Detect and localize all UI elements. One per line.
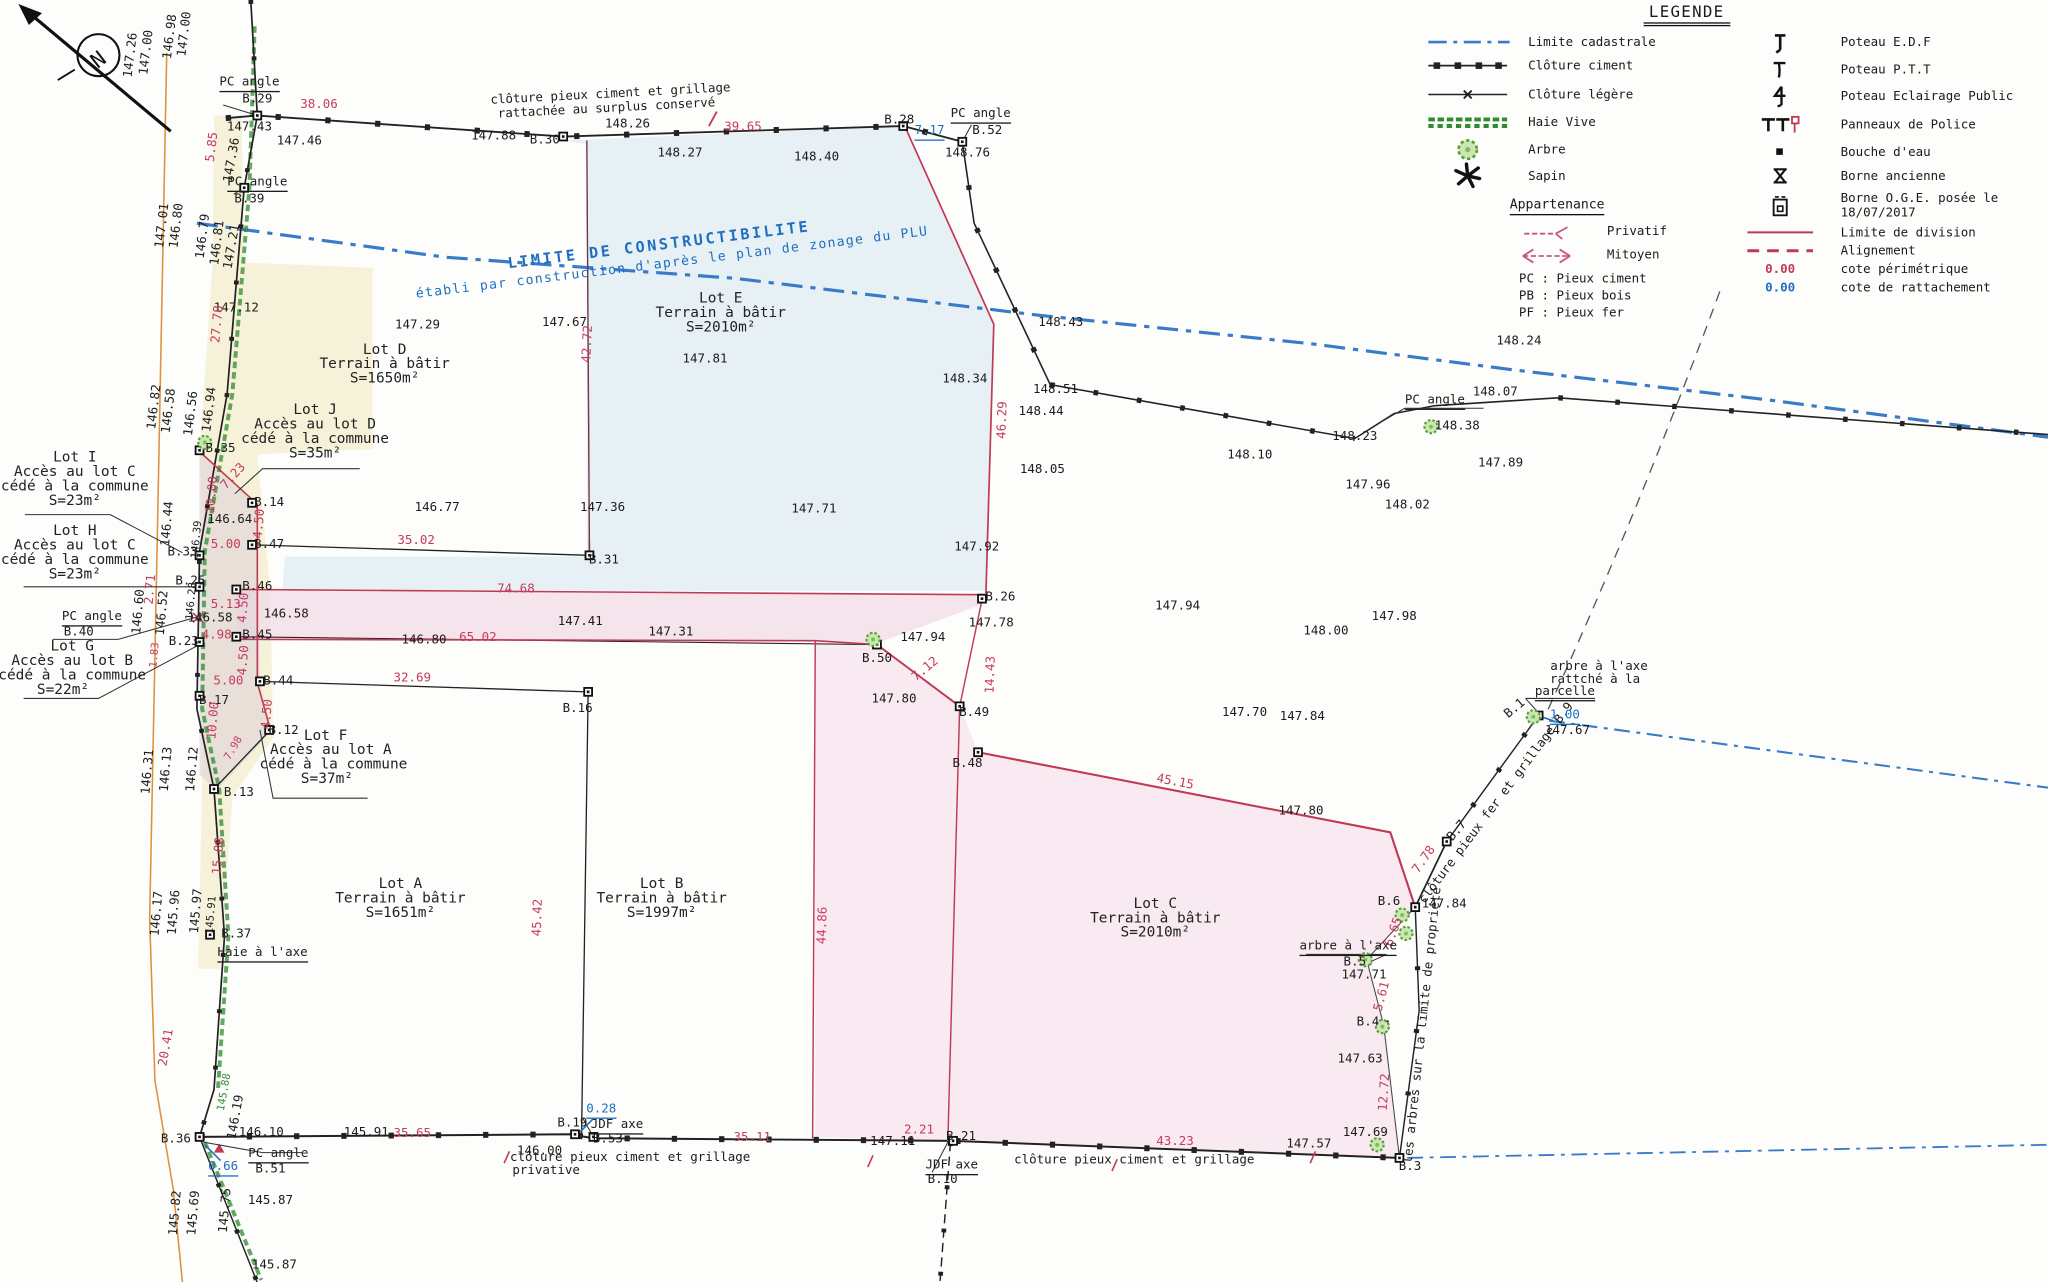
boundary-point-center xyxy=(958,705,961,708)
boundary-point-center xyxy=(198,1136,201,1139)
north-arrow-icon: N xyxy=(18,4,170,131)
legend-item-arbre: Arbre xyxy=(1420,139,1565,160)
boundary-point-center xyxy=(235,635,238,638)
arbre-icon xyxy=(1359,953,1372,966)
borne-ancienne-icon xyxy=(1733,165,1828,186)
boundary-point-center xyxy=(977,751,980,754)
legend-item-label: Limite cadastrale xyxy=(1515,35,1656,49)
boundary-point-center xyxy=(209,933,212,936)
legend-appartenance-title: Appartenance xyxy=(1510,198,1605,215)
legend-item-label: Clôture légère xyxy=(1515,87,1633,101)
boundary-point-center xyxy=(588,554,591,557)
legend-item-haie-vive: Haie Vive xyxy=(1420,112,1595,133)
boundary-point-center xyxy=(243,186,246,189)
boundary-point-center xyxy=(251,501,254,504)
poteau-eclairage-icon xyxy=(1733,84,1828,108)
legend-item-label: Limite de division xyxy=(1827,225,1975,239)
panneaux-police-icon xyxy=(1733,113,1828,137)
arbre-icon xyxy=(198,436,211,449)
legend-abbreviation: PF : Pieux fer xyxy=(1519,306,1624,320)
arbre-icon xyxy=(1371,1138,1384,1151)
boundary-point-center xyxy=(1398,1157,1401,1160)
boundary-point-center xyxy=(1445,840,1448,843)
legend-abbreviation: PB : Pieux bois xyxy=(1519,289,1632,303)
legend-item-cloture-legere: Clôture légère xyxy=(1420,84,1633,105)
survey-plan-page: N 147.26147.00146.98147.00PC angleB.2914… xyxy=(0,0,2048,1282)
arbre-icon xyxy=(1424,420,1437,433)
legend-item-sapin: Sapin xyxy=(1420,165,1565,186)
sapin-icon xyxy=(1420,161,1515,190)
boundary-point-center xyxy=(235,588,238,591)
boundary-point-center xyxy=(198,449,201,452)
boundary-point-center xyxy=(198,694,201,697)
dashed-curve-line xyxy=(1547,291,1720,712)
legend-item-privatif-arrow: Privatif xyxy=(1499,221,1667,242)
legend-item-label: Poteau Eclairage Public xyxy=(1827,89,2013,103)
arbre-icon xyxy=(1396,908,1409,921)
boundary-point-center xyxy=(592,1136,595,1139)
boundary-point-center xyxy=(902,125,905,128)
legend-abbreviation: PC : Pieux ciment xyxy=(1519,272,1647,286)
legend-item-label: Arbre xyxy=(1515,142,1566,156)
poteau-edf-icon xyxy=(1733,30,1828,54)
legend-item-poteau-ptt: Poteau P.T.T xyxy=(1733,59,1931,80)
boundary-point-center xyxy=(256,114,259,117)
legend-item-label: Alignement xyxy=(1827,244,1915,258)
legend-item-label: Haie Vive xyxy=(1515,115,1596,129)
legend-item-label: cote périmétrique xyxy=(1827,262,1968,276)
legend-item-label: cote de rattachement xyxy=(1827,280,1990,294)
legend-item-limite-cadastrale: Limite cadastrale xyxy=(1420,32,1655,53)
legend-item-borne-ancienne: Borne ancienne xyxy=(1733,165,1946,186)
boundary-point-center xyxy=(198,586,201,589)
boundary-point-center xyxy=(981,597,984,600)
legend-item-label: Panneaux de Police xyxy=(1827,117,1975,131)
zone-fills xyxy=(198,116,1415,1158)
legend-item-borne-oge: Borne O.G.E. posée le 18/07/2017 xyxy=(1733,196,2048,217)
bouche-eau-icon xyxy=(1733,144,1828,160)
legend-item-cote-rattachement: 0.00cote de rattachement xyxy=(1733,277,1991,298)
legend-item-mitoyen-arrow: Mitoyen xyxy=(1499,244,1659,265)
plan-geometry: N xyxy=(0,0,2048,1282)
arbre-icon xyxy=(1376,1020,1389,1033)
zone-blue-lot-e xyxy=(282,126,994,591)
cloture-legere-icon xyxy=(1420,87,1515,103)
cloture-ciment-icon xyxy=(1420,58,1515,74)
arbre-icon xyxy=(1420,138,1515,162)
zone-pink-lot-c xyxy=(815,642,1415,1158)
legend-item-panneaux-police: Panneaux de Police xyxy=(1733,114,1976,135)
legend-item-label: Borne O.G.E. posée le 18/07/2017 xyxy=(1827,192,2048,221)
cote-rattachement-icon: 0.00 xyxy=(1733,280,1828,294)
arbre-icon xyxy=(1399,927,1412,940)
legend-item-bouche-eau: Bouche d'eau xyxy=(1733,142,1931,163)
borne-oge-icon xyxy=(1733,194,1828,218)
boundary-point-center xyxy=(259,680,262,683)
boundary-point-center xyxy=(198,641,201,644)
boundary-point-center xyxy=(961,140,964,143)
boundary-point-center xyxy=(251,544,254,547)
arbre-icon xyxy=(1527,710,1540,723)
legend-item-label: Privatif xyxy=(1594,224,1667,238)
limite-cadastrale-icon xyxy=(1420,34,1515,50)
boundary-point-center xyxy=(198,554,201,557)
boundary-point-center xyxy=(562,135,565,138)
boundary-point-center xyxy=(574,1133,577,1136)
legend-item-poteau-eclairage: Poteau Eclairage Public xyxy=(1733,85,2013,106)
alignement-icon xyxy=(1733,244,1828,257)
legend-item-poteau-edf: Poteau E.D.F xyxy=(1733,32,1931,53)
arbre-icon xyxy=(866,633,879,646)
boundary-point-center xyxy=(1414,906,1417,909)
orange-road-line xyxy=(150,53,183,1282)
poteau-ptt-icon xyxy=(1733,58,1828,82)
privatif-arrow-icon xyxy=(1499,222,1594,240)
boundary-point-center xyxy=(213,788,216,791)
boundary-point-center xyxy=(587,691,590,694)
legend-item-label: Clôture ciment xyxy=(1515,58,1633,72)
legend-item-label: Mitoyen xyxy=(1594,247,1660,261)
legend-item-label: Poteau P.T.T xyxy=(1827,62,1930,76)
limite-division-icon xyxy=(1733,226,1828,239)
legend-item-label: Sapin xyxy=(1515,169,1566,183)
plan-canvas: N 147.26147.00146.98147.00PC angleB.2914… xyxy=(0,0,2048,1282)
legend-title: LEGENDE xyxy=(1644,3,1730,27)
boundary-point-center xyxy=(952,1140,955,1143)
haie-vive-icon xyxy=(1420,114,1515,130)
legend-item-label: Borne ancienne xyxy=(1827,169,1945,183)
boundary-point-center xyxy=(268,729,271,732)
legend-item-cloture-ciment: Clôture ciment xyxy=(1420,55,1633,76)
svg-text:N: N xyxy=(86,46,111,73)
legend-item-label: Poteau E.D.F xyxy=(1827,35,1930,49)
legend-item-label: Bouche d'eau xyxy=(1827,145,1930,159)
mitoyen-arrow-icon xyxy=(1499,245,1594,263)
cote-perimetrique-icon: 0.00 xyxy=(1733,262,1828,276)
